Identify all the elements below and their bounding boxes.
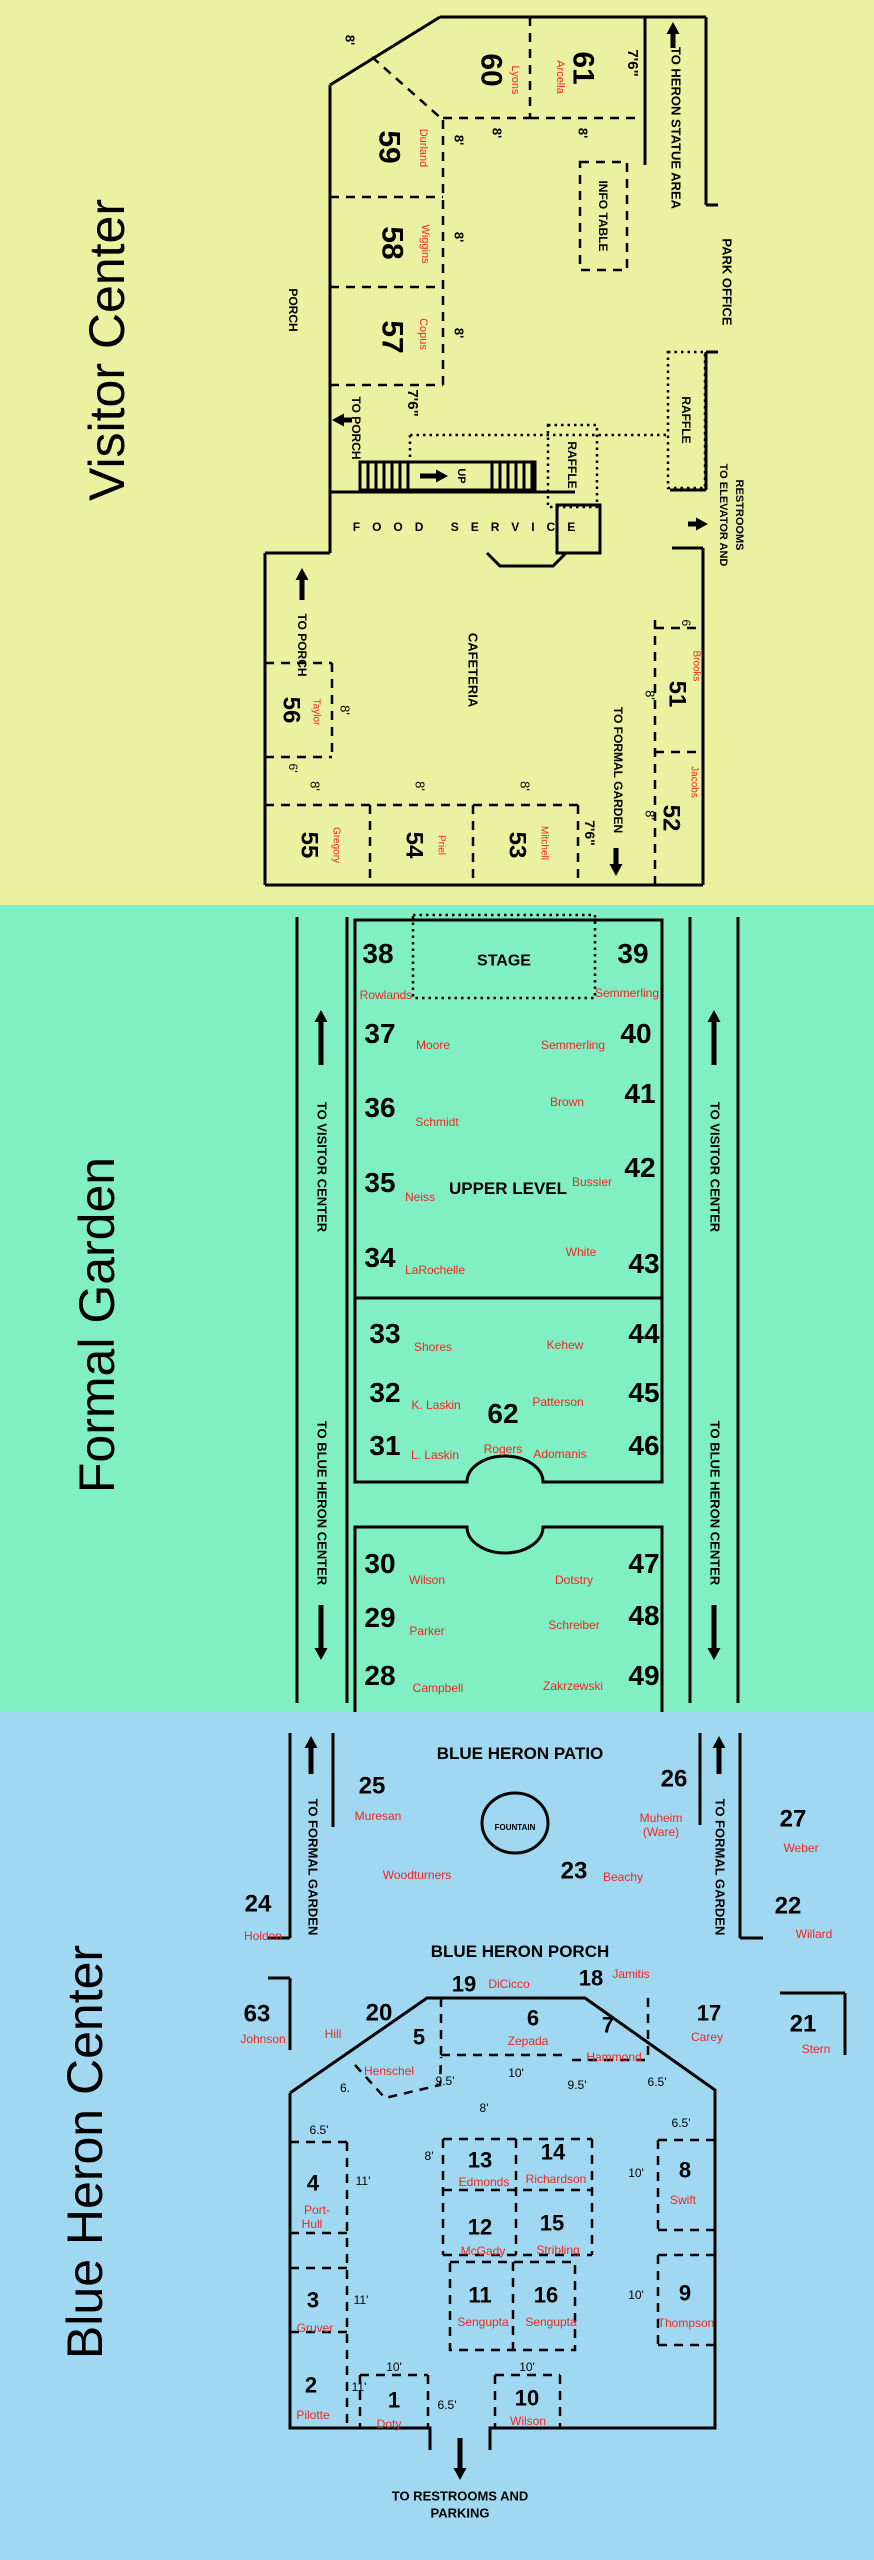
booth-45-number: 45	[628, 1377, 659, 1408]
booth-32-number: 32	[369, 1377, 400, 1408]
booth-5-number: 5	[413, 2025, 425, 2050]
booth-41-number: 41	[624, 1078, 655, 1109]
booth-9-name: Thompson	[658, 2316, 715, 2330]
booth-2-name: Pilotte	[296, 2408, 330, 2422]
to-porch-label: TO PORCH	[349, 396, 363, 459]
booth-25-number: 25	[359, 1772, 386, 1799]
booth-24-number: 24	[245, 1890, 272, 1917]
booth-28-name: Campbell	[413, 1681, 464, 1695]
formal-garden-section: Formal Garden STAGE38Rowlands39Semmerlin…	[0, 905, 874, 1712]
formal-garden-map: STAGE38Rowlands39Semmerling37Moore40Semm…	[0, 905, 874, 1712]
booth-39-number: 39	[617, 938, 648, 969]
booth-divider-dashed	[372, 57, 443, 120]
booth-21-name: Stern	[802, 2042, 831, 2056]
booth-19-number: 19	[452, 1972, 476, 1997]
dim-label: 8'	[451, 135, 466, 145]
wall-path	[487, 553, 566, 566]
booth-16-number: 16	[534, 2283, 558, 2308]
to-elevator2-label: RESTROOMS	[733, 480, 745, 551]
booth-48-number: 48	[628, 1600, 659, 1631]
booth-61-number: 61	[567, 51, 600, 84]
booth-23-name: Beachy	[603, 1870, 643, 1884]
booth-3-number: 3	[307, 2288, 319, 2313]
booth-46-number: 46	[628, 1430, 659, 1461]
booth-7-number: 7	[602, 2013, 614, 2038]
dim-label: 9.5'	[436, 2074, 455, 2088]
booth-29-name: Parker	[409, 1624, 444, 1638]
to-formal-garden-label: TO FORMAL GARDEN	[611, 707, 625, 833]
event-map: Visitor Center 59Durland58Wiggins57Copus…	[0, 0, 874, 2560]
booth-31-number: 31	[369, 1430, 400, 1461]
dim-label: 6.5'	[648, 2075, 667, 2089]
booth-34-number: 34	[364, 1242, 396, 1273]
booth-6-name: Zepada	[508, 2034, 549, 2048]
blue-heron-center-section: Blue Heron Center BLUE HERON PATIO25Mure…	[0, 1712, 874, 2560]
raffle-label: RAFFLE	[565, 441, 579, 488]
dim-label: 8'	[517, 781, 532, 791]
booth-23-number: 23	[561, 1857, 588, 1884]
blue-heron-center-map: BLUE HERON PATIO25MuresanFOUNTAIN26Muhei…	[0, 1712, 874, 2560]
to-restrooms1-label: TO RESTROOMS AND	[392, 2489, 529, 2504]
booth-17-number: 17	[697, 2001, 721, 2026]
booth-26-name: (Ware)	[643, 1825, 679, 1839]
booth-36-number: 36	[364, 1092, 395, 1123]
direction-arrow-icon	[332, 414, 344, 427]
direction-arrow-icon	[610, 864, 623, 876]
dim-label: 8'	[642, 810, 657, 820]
booth-15-name: Stribling	[536, 2243, 579, 2257]
booth-27-name: Weber	[783, 1841, 818, 1855]
booth-55-name: Gregory	[331, 827, 342, 863]
dim-label: 6'	[286, 764, 300, 773]
direction-arrow-icon	[708, 1010, 721, 1022]
booth-21-number: 21	[790, 2010, 817, 2037]
booth-44-number: 44	[628, 1318, 660, 1349]
booth-35-name: Neiss	[405, 1190, 435, 1204]
booth-1-name: Doty	[377, 2417, 402, 2431]
dim-label: 8'	[307, 781, 322, 791]
dim-label: 8'	[451, 232, 466, 242]
to-formal-garden-label: TO FORMAL GARDEN	[712, 1799, 727, 1936]
booth-57-number: 57	[376, 320, 409, 353]
direction-arrow-icon	[305, 1736, 318, 1748]
booth-54-number: 54	[401, 832, 428, 859]
booth-22-name: Willard	[796, 1927, 833, 1941]
booth-30-number: 30	[364, 1548, 395, 1579]
booth-33-name: Shores	[414, 1340, 452, 1354]
dim-label: 7'6"	[404, 389, 421, 416]
booth-52-name: Jacobs	[689, 766, 700, 798]
booth-20-name: Hill	[325, 2027, 342, 2041]
to-blue-heron-label: TO BLUE HERON CENTER	[314, 1421, 329, 1586]
booth-56-number: 56	[278, 697, 305, 724]
to-porch-label: TO PORCH	[295, 613, 309, 676]
to-formal-garden-label: TO FORMAL GARDEN	[305, 1799, 320, 1936]
booth-38-number: 38	[362, 938, 393, 969]
booth-10-name: Wilson	[510, 2414, 546, 2428]
dim-label: 11'	[352, 2380, 367, 2394]
booth-27-number: 27	[780, 1805, 807, 1832]
dim-label: 10'	[628, 2166, 644, 2180]
visitor-center-section: Visitor Center 59Durland58Wiggins57Copus…	[0, 0, 874, 905]
booth-11-number: 11	[468, 2283, 491, 2308]
booth-59-number: 59	[373, 130, 406, 163]
booth-58-name: Wiggins	[419, 224, 431, 264]
info-table-label: INFO TABLE	[596, 180, 610, 251]
booth-36-name: Schmidt	[415, 1115, 459, 1129]
booth-46-name: Adomanis	[533, 1447, 586, 1461]
booth-60-name: Lyons	[509, 66, 521, 95]
booth-47-name: Dotstry	[555, 1573, 593, 1587]
dim-label: 9.5'	[568, 2078, 587, 2092]
booth-3-name: Gruver	[297, 2321, 334, 2335]
booth-55-number: 55	[296, 832, 323, 859]
direction-arrow-icon	[667, 22, 680, 34]
booth-42-number: 42	[624, 1152, 655, 1183]
booth-47-number: 47	[628, 1548, 659, 1579]
booth-10-number: 10	[515, 2386, 539, 2411]
dim-label: 10'	[386, 2360, 402, 2374]
booth-34-name: LaRochelle	[405, 1263, 465, 1277]
to-visitor-label: TO VISITOR CENTER	[314, 1102, 329, 1233]
booth-58-number: 58	[376, 226, 409, 259]
booth-44-name: Kehew	[547, 1338, 584, 1352]
booth-1-number: 1	[388, 2388, 400, 2413]
to-restrooms2-label: PARKING	[431, 2506, 490, 2521]
booth-52-number: 52	[658, 805, 685, 832]
booth-60-number: 60	[475, 53, 508, 86]
booth-43-number: 43	[628, 1248, 659, 1279]
booth-4-number: 4	[307, 2171, 320, 2196]
booth-5-name: Henschel	[364, 2064, 414, 2078]
booth-8-number: 8	[679, 2158, 691, 2183]
booth-53-number: 53	[504, 832, 531, 859]
solid-box	[355, 920, 662, 1298]
booth-26-number: 26	[661, 1765, 688, 1792]
fountain-label: FOUNTAIN	[495, 1823, 536, 1832]
to-visitor-label: TO VISITOR CENTER	[707, 1102, 722, 1233]
direction-arrow-icon	[454, 2468, 467, 2480]
booth-29-number: 29	[364, 1602, 395, 1633]
booth-41-name: Brown	[550, 1095, 584, 1109]
dim-label: 6'	[679, 620, 693, 629]
booth-22-number: 22	[775, 1892, 802, 1919]
booth-35-number: 35	[364, 1167, 395, 1198]
booth-12-number: 12	[468, 2215, 492, 2240]
booth-30-name: Wilson	[409, 1573, 445, 1587]
booth-28-number: 28	[364, 1660, 395, 1691]
booth-59-name: Durland	[417, 129, 429, 168]
booth-38-name: Rowlands	[360, 988, 413, 1002]
booth-37-name: Moore	[416, 1038, 450, 1052]
direction-arrow-icon	[315, 1010, 328, 1022]
to-heron-label: TO HERON STATUE AREA	[668, 47, 683, 210]
patio-label: BLUE HERON PATIO	[437, 1744, 604, 1763]
woodturners-label: Woodturners	[383, 1868, 451, 1882]
booth-17-name: Carey	[691, 2030, 723, 2044]
dim-label: 6.5'	[672, 2116, 691, 2130]
dim-label: 8'	[642, 690, 657, 700]
dim-label: 8'	[412, 781, 427, 791]
booth-49-number: 49	[628, 1660, 659, 1691]
dim-label: 6.5'	[310, 2123, 329, 2137]
booth-45-name: Patterson	[532, 1395, 583, 1409]
booth-6-number: 6	[527, 2006, 539, 2031]
dim-label: 6.	[340, 2081, 350, 2095]
dim-label: 10'	[508, 2066, 524, 2080]
park-office-label: PARK OFFICE	[719, 238, 734, 325]
booth-14-name: Richardson	[526, 2172, 587, 2186]
booth-18-name: Jamitis	[612, 1967, 649, 1981]
direction-arrow-icon	[296, 568, 309, 580]
booth-53-name: Mitchell	[539, 826, 550, 860]
direction-arrow-icon	[436, 470, 448, 483]
booth-12-name: McGady	[461, 2244, 506, 2258]
stage-label: STAGE	[477, 953, 531, 970]
direction-arrow-icon	[713, 1736, 726, 1748]
booth-16-name: Sengupta	[525, 2315, 577, 2329]
direction-arrow-icon	[315, 1648, 328, 1660]
booth-48-name: Schreiber	[548, 1618, 599, 1632]
dim-label: 7'6"	[624, 49, 641, 76]
booth-7-name: Hammond	[586, 2050, 641, 2064]
booth-40-name: Semmerling	[541, 1038, 605, 1052]
booth-4-name: Port-	[304, 2203, 330, 2217]
dim-label: 10'	[628, 2288, 644, 2302]
booth-39-name: Semmerling	[595, 986, 659, 1000]
booth-37-number: 37	[364, 1018, 395, 1049]
booth-63-number: 63	[244, 2000, 271, 2027]
porch-label: PORCH	[286, 288, 300, 331]
up-label: UP	[455, 468, 467, 483]
booth-51-name: Brooks	[691, 650, 702, 681]
dim-label: 8'	[480, 2101, 489, 2115]
to-blue-heron-label: TO BLUE HERON CENTER	[707, 1421, 722, 1586]
direction-arrow-icon	[708, 1648, 721, 1660]
booth-8-name: Swift	[670, 2193, 697, 2207]
dim-label: 8'	[451, 328, 466, 338]
dim-label: 11'	[354, 2293, 369, 2307]
booth-31-name: L. Laskin	[411, 1448, 459, 1462]
booth-2-number: 2	[305, 2373, 317, 2398]
dim-label: 8'	[489, 128, 504, 138]
booth-51-number: 51	[664, 681, 691, 708]
booth-20-number: 20	[366, 1999, 393, 2026]
booth-63-name: Johnson	[240, 2032, 285, 2046]
dim-label: 7'6"	[582, 820, 598, 846]
booth-32-name: K. Laskin	[411, 1398, 460, 1412]
booth-40-number: 40	[620, 1018, 651, 1049]
booth-11-name: Sengupta	[457, 2315, 509, 2329]
cafeteria-label: CAFETERIA	[465, 633, 480, 708]
dim-label: 11'	[356, 2174, 371, 2188]
booth-13-number: 13	[468, 2148, 492, 2173]
dim-label: 10'	[519, 2360, 535, 2374]
food-service-label: FOOD SERVICE	[353, 520, 587, 534]
booth-56-name: Taylor	[311, 699, 322, 726]
to-elevator1-label: TO ELEVATOR AND	[717, 464, 729, 567]
booth-18-number: 18	[579, 1966, 603, 1991]
booth-42-name: Bussler	[572, 1175, 612, 1189]
booth-54-name: Priel	[436, 835, 447, 855]
dim-label: 8'	[425, 2149, 434, 2163]
porch-label: BLUE HERON PORCH	[431, 1942, 610, 1961]
dim-label: 6.5'	[438, 2398, 457, 2412]
booth-15-number: 15	[540, 2211, 564, 2236]
wall-line	[330, 17, 440, 85]
booth-13-name: Edmonds	[459, 2175, 510, 2189]
booth-25-name: Muresan	[355, 1809, 402, 1823]
booth-33-number: 33	[369, 1318, 400, 1349]
wall-path	[355, 1527, 662, 1712]
dim-label: 8'	[342, 35, 357, 45]
booth-62-number: 62	[487, 1398, 518, 1429]
booth-62-name: Rogers	[484, 1442, 523, 1456]
booth-24-name: Holden	[244, 1929, 282, 1943]
dim-label: 8'	[575, 128, 590, 138]
direction-arrow-icon	[696, 518, 708, 531]
booth-19-name: DiCicco	[488, 1977, 530, 1991]
booth-57-name: Copus	[417, 318, 429, 350]
booth-4-name: Hull	[302, 2217, 323, 2231]
booth-61-name: Arcella	[554, 60, 566, 95]
booth-9-number: 9	[679, 2281, 691, 2306]
visitor-center-map: 59Durland58Wiggins57Copus60Lyons61Arcell…	[0, 0, 874, 905]
raffle-label: RAFFLE	[679, 396, 693, 443]
booth-43-name: White	[566, 1245, 597, 1259]
booth-26-name: Muheim	[640, 1811, 683, 1825]
dim-label: 8'	[337, 705, 352, 715]
upper-level-label: UPPER LEVEL	[449, 1179, 567, 1198]
booth-49-name: Zakrzewski	[543, 1679, 603, 1693]
booth-14-number: 14	[541, 2140, 566, 2165]
